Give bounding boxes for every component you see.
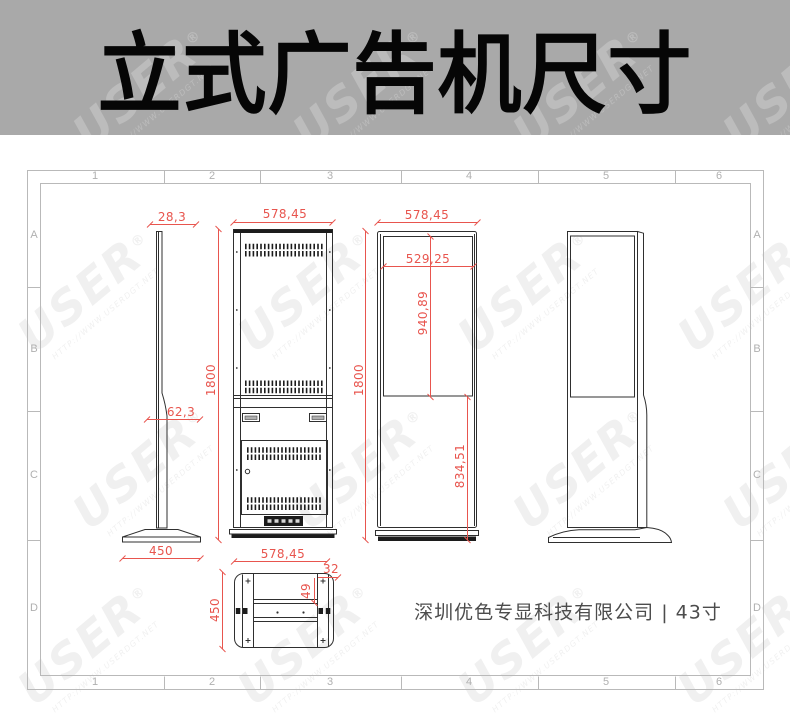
grid-col-label-4: 4 xyxy=(466,676,472,688)
grid-col-label-2: 2 xyxy=(209,676,215,688)
grid-col-label-6: 6 xyxy=(716,170,722,182)
grid-col-label-3: 3 xyxy=(327,170,333,182)
dim-screen-width: 529,25 xyxy=(406,252,450,266)
bottom-view xyxy=(235,574,334,648)
grid-col-label-4: 4 xyxy=(466,170,472,182)
dim-side-lower-thickness: 62,3 xyxy=(167,405,195,419)
grid-row-label-D: D xyxy=(30,602,38,614)
dim-bottom-depth: 450 xyxy=(208,598,222,622)
dim-bottom-side-panel: 32 xyxy=(323,562,339,576)
dim-side-top-thickness: 28,3 xyxy=(158,210,186,224)
grid-row-label-C: C xyxy=(30,469,38,481)
dim-front-height: 1800 xyxy=(352,364,366,396)
grid-col-label-5: 5 xyxy=(603,676,609,688)
grid-col-label-6: 6 xyxy=(716,676,722,688)
grid-row-label-C: C xyxy=(753,469,761,481)
grid-row-label-A: A xyxy=(753,229,760,241)
grid-col-label-3: 3 xyxy=(327,676,333,688)
grid-col-label-1: 1 xyxy=(92,170,98,182)
back-view xyxy=(230,230,337,539)
dim-lower-section-height: 834,51 xyxy=(453,444,467,488)
company-caption: 深圳优色专显科技有限公司 | 43寸 xyxy=(414,598,722,625)
front-view xyxy=(376,232,479,542)
dim-screen-height: 940,89 xyxy=(416,291,430,335)
dim-bottom-width: 578,45 xyxy=(261,547,305,561)
dim-base-depth: 450 xyxy=(149,544,173,558)
grid-row-label-A: A xyxy=(30,229,37,241)
perspective-view xyxy=(549,232,672,543)
poster-canvas: USER®HTTP://WWW.USERDGT.NETUSER®HTTP://W… xyxy=(0,0,790,718)
grid-col-label-1: 1 xyxy=(92,676,98,688)
grid-col-label-2: 2 xyxy=(209,170,215,182)
grid-row-label-B: B xyxy=(753,343,760,355)
side-view xyxy=(123,232,201,543)
dim-back-width: 578,45 xyxy=(263,207,307,221)
grid-col-label-5: 5 xyxy=(603,170,609,182)
grid-row-label-B: B xyxy=(30,343,37,355)
grid-row-label-D: D xyxy=(753,602,761,614)
dim-bottom-offset: 49 xyxy=(299,583,313,599)
dim-back-height: 1800 xyxy=(204,364,218,396)
dim-front-width: 578,45 xyxy=(405,208,449,222)
